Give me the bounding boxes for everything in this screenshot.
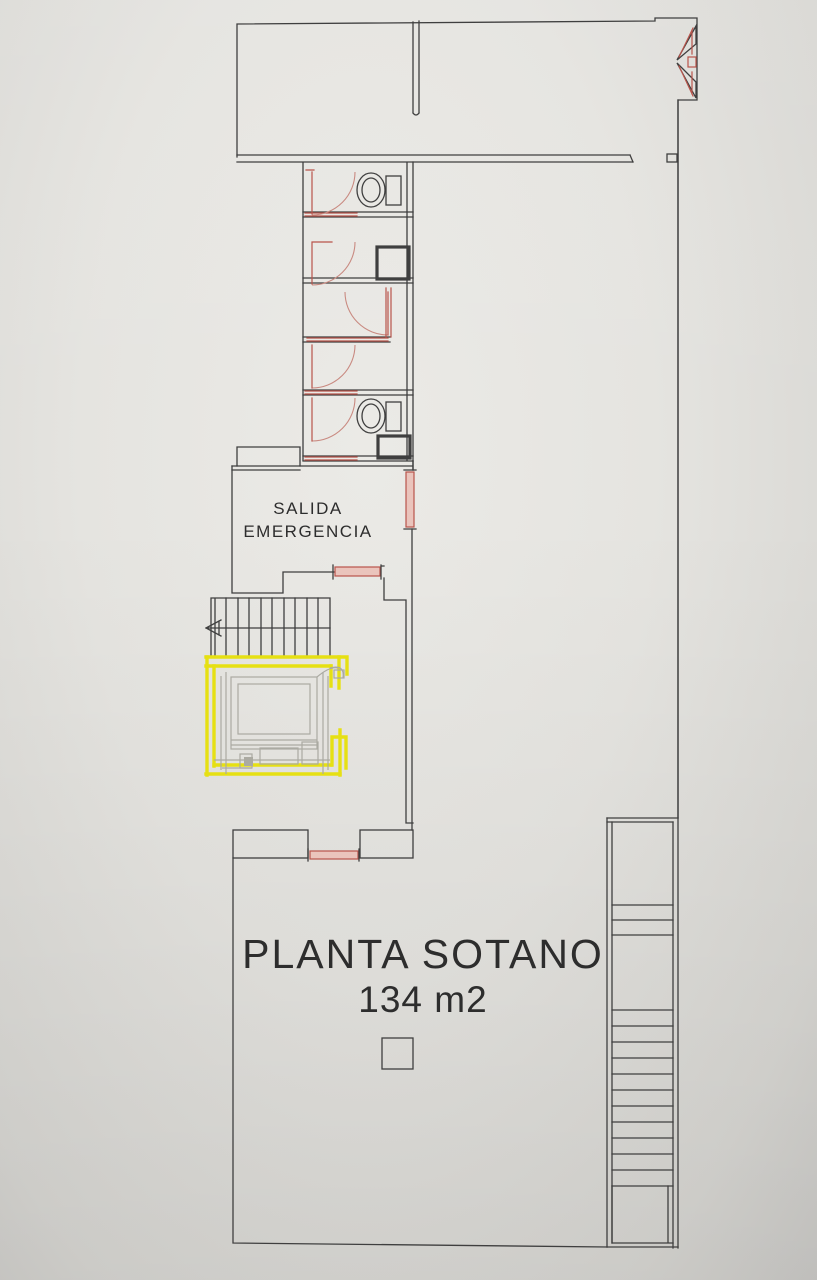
upper-stairs (206, 598, 330, 656)
fire-door (406, 472, 414, 527)
emergency-exit-label-line2: EMERGENCIA (243, 522, 372, 541)
door-swing-icon (345, 288, 391, 337)
exit-door (335, 567, 380, 576)
top-storage-room (237, 18, 697, 818)
toilet-icon (357, 399, 401, 433)
main-room: PLANTA SOTANO 134 m2 (233, 830, 607, 1247)
floor-plan-photo: SALIDA EMERGENCIA (0, 0, 817, 1280)
main-room-door (310, 851, 358, 859)
corridor-right-wall (384, 461, 416, 830)
duct-niche (377, 247, 409, 279)
door-swing-icon (312, 398, 355, 441)
plan-area-label: 134 m2 (358, 979, 487, 1020)
stairs-direction-arrow-icon (206, 620, 330, 636)
toilet-icon (357, 173, 401, 207)
entrance-double-door-icon (677, 26, 696, 98)
toilet-block (303, 162, 413, 470)
elevator-shaft-highlight (206, 657, 347, 775)
elevator-car (214, 667, 344, 774)
step-niche (378, 436, 410, 458)
right-staircase (607, 100, 678, 1248)
emergency-exit-room: SALIDA EMERGENCIA (232, 447, 412, 593)
plan-title-label: PLANTA SOTANO (242, 931, 604, 977)
floor-plan-drawing: SALIDA EMERGENCIA (0, 0, 817, 1280)
door-swing-icon (312, 345, 355, 388)
emergency-exit-label-line1: SALIDA (273, 499, 342, 518)
column-square (382, 1038, 413, 1069)
door-swing-icon (306, 170, 355, 215)
